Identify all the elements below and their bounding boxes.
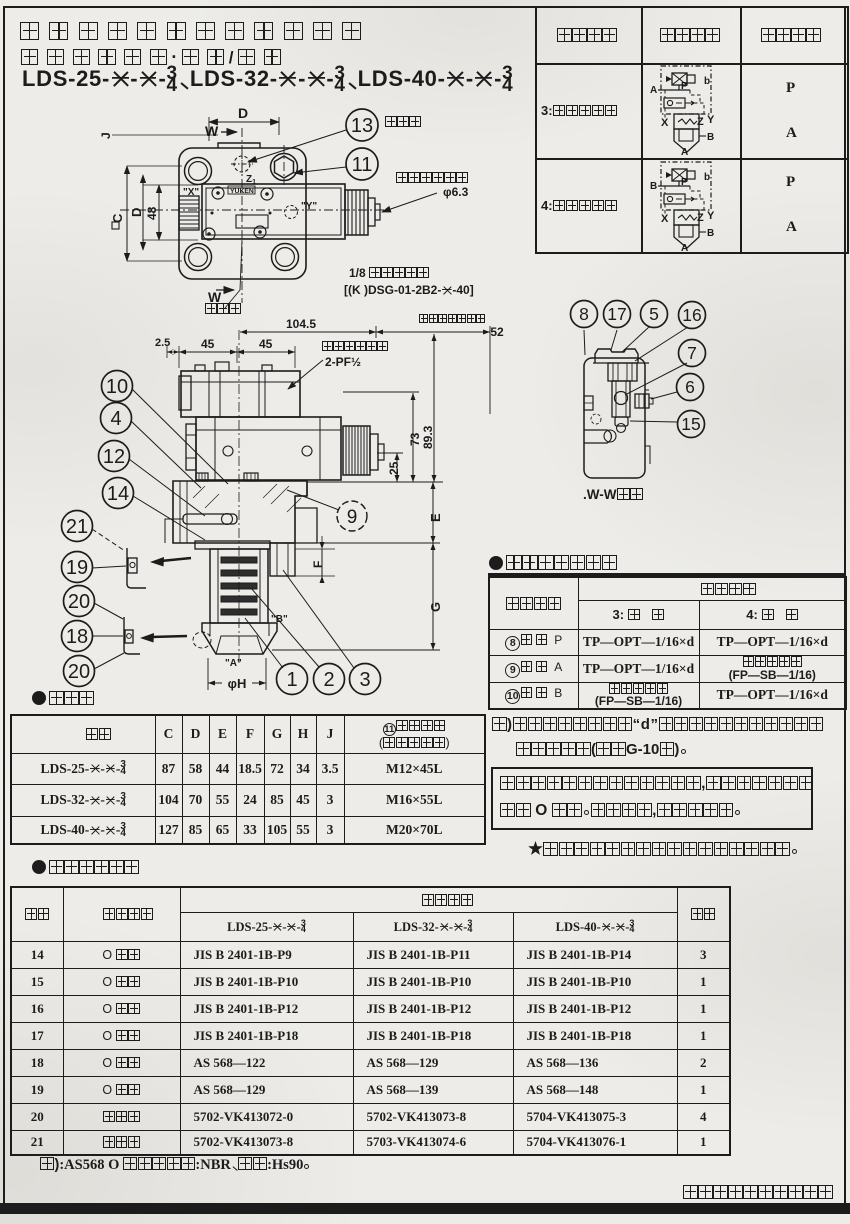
- svg-text:b: b: [704, 172, 710, 183]
- svg-text:Y: Y: [707, 210, 715, 222]
- svg-text:Z: Z: [697, 116, 704, 128]
- svg-text:B: B: [707, 228, 714, 239]
- svg-text:W: W: [205, 123, 219, 139]
- svg-text:15: 15: [681, 414, 700, 434]
- svg-text:D: D: [238, 105, 248, 121]
- svg-text:20: 20: [68, 661, 90, 683]
- svg-text:11: 11: [352, 154, 373, 176]
- svg-text:φH: φH: [228, 676, 247, 691]
- svg-text:1: 1: [286, 669, 297, 691]
- svg-text:"X": "X": [183, 187, 199, 198]
- svg-text:"B": "B": [271, 614, 288, 625]
- svg-text:YUKEN: YUKEN: [230, 188, 254, 195]
- svg-text:"A": "A": [225, 658, 242, 669]
- svg-text:6: 6: [685, 377, 695, 397]
- svg-text:2.5: 2.5: [155, 337, 170, 349]
- svg-text:E: E: [428, 513, 443, 522]
- svg-text:P: P: [681, 177, 688, 188]
- svg-text:7: 7: [687, 343, 697, 363]
- svg-text:A: A: [681, 243, 688, 254]
- svg-text:2: 2: [323, 669, 334, 691]
- svg-text:"Y": "Y": [301, 201, 317, 212]
- svg-text:B: B: [707, 132, 714, 143]
- svg-text:21: 21: [66, 516, 88, 538]
- svg-text:D: D: [129, 208, 144, 217]
- svg-text:73: 73: [408, 432, 422, 446]
- svg-text:G: G: [428, 602, 443, 612]
- svg-text:13: 13: [351, 115, 373, 137]
- svg-text:104.5: 104.5: [286, 317, 316, 331]
- svg-text:18: 18: [66, 626, 88, 648]
- svg-text:A: A: [681, 147, 688, 158]
- svg-text:X: X: [661, 213, 669, 225]
- svg-text:16: 16: [682, 305, 701, 325]
- svg-text:8: 8: [579, 304, 589, 324]
- svg-text:P: P: [681, 81, 688, 92]
- svg-text:3: 3: [359, 669, 370, 691]
- svg-text:14: 14: [107, 483, 129, 505]
- svg-text:17: 17: [607, 304, 626, 324]
- svg-text:X: X: [661, 117, 669, 129]
- svg-text:Z: Z: [697, 212, 704, 224]
- svg-text:5: 5: [649, 304, 659, 324]
- svg-text:19: 19: [66, 557, 88, 579]
- svg-text:Y: Y: [707, 114, 715, 126]
- svg-text:20: 20: [68, 591, 90, 613]
- svg-text:25: 25: [387, 461, 401, 475]
- svg-text:89.3: 89.3: [421, 425, 435, 449]
- svg-text:Z1: Z1: [246, 174, 256, 186]
- svg-text:A: A: [650, 85, 657, 96]
- svg-text:B: B: [650, 181, 657, 192]
- svg-text:48: 48: [145, 206, 159, 220]
- svg-text:45: 45: [259, 337, 273, 351]
- svg-text:10: 10: [106, 376, 128, 398]
- svg-text:12: 12: [103, 446, 125, 468]
- svg-text:45: 45: [201, 337, 215, 351]
- svg-text:F: F: [311, 561, 325, 568]
- svg-text:52: 52: [490, 325, 504, 339]
- svg-text:4: 4: [110, 408, 121, 430]
- svg-text:J: J: [99, 132, 113, 139]
- svg-text:9: 9: [347, 507, 358, 528]
- svg-text:b: b: [704, 76, 710, 87]
